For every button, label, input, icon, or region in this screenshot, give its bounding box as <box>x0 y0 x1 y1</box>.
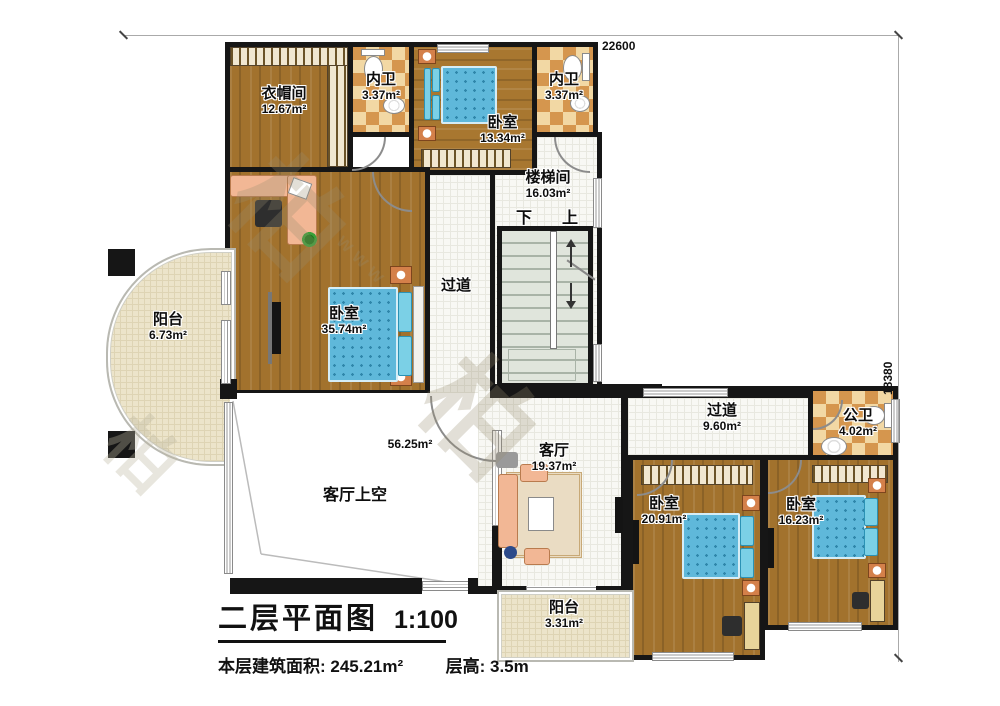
window <box>593 178 602 228</box>
closet-shelf <box>230 47 348 66</box>
room-area: 19.37m² <box>509 460 599 473</box>
room-area: 35.74m² <box>299 323 389 336</box>
floor-plan: 柏 柏 www 柏 衣帽间 12.67m² 内卫 3.37m² 卧室 13.34… <box>0 0 1000 706</box>
nightstand <box>868 478 886 493</box>
bed-pillow <box>864 498 878 526</box>
drawing-scale: 1:100 <box>394 606 458 634</box>
room-label-living: 客厅 19.37m² <box>509 443 599 473</box>
window <box>221 320 231 384</box>
room-label-stairwell: 楼梯间 16.03m² <box>503 170 593 200</box>
bed-pillow <box>740 548 754 578</box>
floor-height-label: 层高: 3.5m <box>446 657 529 676</box>
chair <box>722 616 742 636</box>
bed-pillow <box>424 68 431 120</box>
armchair <box>524 548 550 565</box>
window <box>437 44 489 53</box>
chair <box>852 592 869 609</box>
room-label-balcony-left: 阳台 6.73m² <box>123 312 213 342</box>
room-area: 3.37m² <box>529 89 599 102</box>
room-label-balcony-bottom: 阳台 3.31m² <box>519 600 609 630</box>
nightstand <box>390 266 412 284</box>
bed-headboard <box>413 286 424 383</box>
window <box>422 581 470 591</box>
stairs-up-label: 上 <box>558 210 582 228</box>
window <box>643 388 728 397</box>
desk <box>744 602 760 650</box>
room-label-bath-public: 公卫 4.02m² <box>813 408 903 438</box>
stair-arrow-head <box>566 239 576 247</box>
tv-icon <box>768 528 774 568</box>
desk <box>870 580 885 622</box>
room-area: 56.25m² <box>365 438 455 451</box>
room-area: 4.02m² <box>813 425 903 438</box>
bed-pillow <box>398 336 412 376</box>
nightstand <box>742 580 760 596</box>
wall <box>230 578 422 594</box>
title-underline <box>218 640 446 643</box>
toilet-tank <box>361 49 385 56</box>
bed-pillow <box>432 68 440 92</box>
window <box>788 622 862 631</box>
chair <box>255 200 282 227</box>
stair-landing <box>508 349 576 381</box>
window <box>221 271 231 305</box>
floor-area-label: 本层建筑面积: 245.21m² <box>218 657 403 676</box>
bed-pillow <box>432 95 440 120</box>
room-area: 9.60m² <box>677 420 767 433</box>
bed-pillow <box>864 528 878 556</box>
bed-pillow <box>398 292 412 332</box>
room-label-corridor-center: 过道 <box>411 278 501 295</box>
room-label-bedroom-b1: 卧室 20.91m² <box>619 496 709 526</box>
coffee-table <box>528 497 554 531</box>
dimension-line-right <box>898 35 899 662</box>
tv-icon <box>272 302 281 354</box>
stair-arrow-head <box>566 301 576 309</box>
pillar <box>108 431 135 458</box>
room-label-bedroom-master: 卧室 35.74m² <box>299 306 389 336</box>
void-area-label: 56.25m² <box>365 438 455 451</box>
room-area: 20.91m² <box>619 513 709 526</box>
stair-rail <box>550 231 557 349</box>
room-name: 阳台 <box>123 312 213 329</box>
room-name: 卧室 <box>299 306 389 323</box>
room-label-cloakroom: 衣帽间 12.67m² <box>239 86 329 116</box>
plant-icon <box>302 232 317 247</box>
room-name: 客厅 <box>509 443 599 460</box>
room-name: 过道 <box>677 403 767 420</box>
room-name: 衣帽间 <box>239 86 329 103</box>
tv-icon <box>633 520 639 564</box>
room-label-bedroom-b2: 卧室 16.23m² <box>756 497 846 527</box>
dimension-line-top <box>123 35 898 36</box>
sink-icon <box>821 437 847 456</box>
room-name: 过道 <box>411 278 501 295</box>
stair-arrow <box>570 245 572 267</box>
window <box>652 652 734 661</box>
room-area: 12.67m² <box>239 103 329 116</box>
room-label-bath2: 内卫 3.37m² <box>529 72 599 102</box>
closet-shelf <box>327 65 348 167</box>
room-area: 16.23m² <box>756 514 846 527</box>
window <box>224 402 233 574</box>
stair-arrow <box>570 283 572 303</box>
pillar <box>108 249 135 276</box>
wardrobe <box>421 149 511 168</box>
nightstand <box>868 563 886 578</box>
room-label-corridor-right: 过道 9.60m² <box>677 403 767 433</box>
nightstand <box>418 49 436 64</box>
stairs-down-label: 下 <box>512 210 536 228</box>
door-arc <box>352 137 386 171</box>
room-name: 卧室 <box>455 115 550 132</box>
room-area: 13.34m² <box>455 132 550 145</box>
room-name: 公卫 <box>813 408 903 425</box>
room-bedroom-top <box>409 42 537 175</box>
room-label-bedroom-top: 卧室 13.34m² <box>455 115 550 145</box>
title-block: 二层平面图1:100 本层建筑面积: 245.21m² 层高: 3.5m <box>218 595 529 677</box>
room-name: 卧室 <box>756 497 846 514</box>
room-label-void: 客厅上空 <box>300 487 410 505</box>
nightstand <box>418 126 436 141</box>
room-name: 楼梯间 <box>503 170 593 187</box>
staircase <box>497 226 593 388</box>
room-label-bath1: 内卫 3.37m² <box>346 72 416 102</box>
window <box>593 344 602 382</box>
room-name: 阳台 <box>519 600 609 617</box>
page-title: 二层平面图 <box>218 603 378 635</box>
room-name: 内卫 <box>529 72 599 89</box>
room-area: 16.03m² <box>503 187 593 200</box>
bed-pillow <box>740 516 754 546</box>
dimension-right-value: 18380 <box>881 335 895 395</box>
dimension-top-value: 22600 <box>602 39 635 53</box>
room-area: 3.31m² <box>519 617 609 630</box>
room-name: 内卫 <box>346 72 416 89</box>
room-area: 6.73m² <box>123 329 213 342</box>
room-name: 卧室 <box>619 496 709 513</box>
room-name: 客厅上空 <box>300 487 410 505</box>
stool <box>504 546 517 559</box>
room-area: 3.37m² <box>346 89 416 102</box>
sofa <box>498 474 518 548</box>
